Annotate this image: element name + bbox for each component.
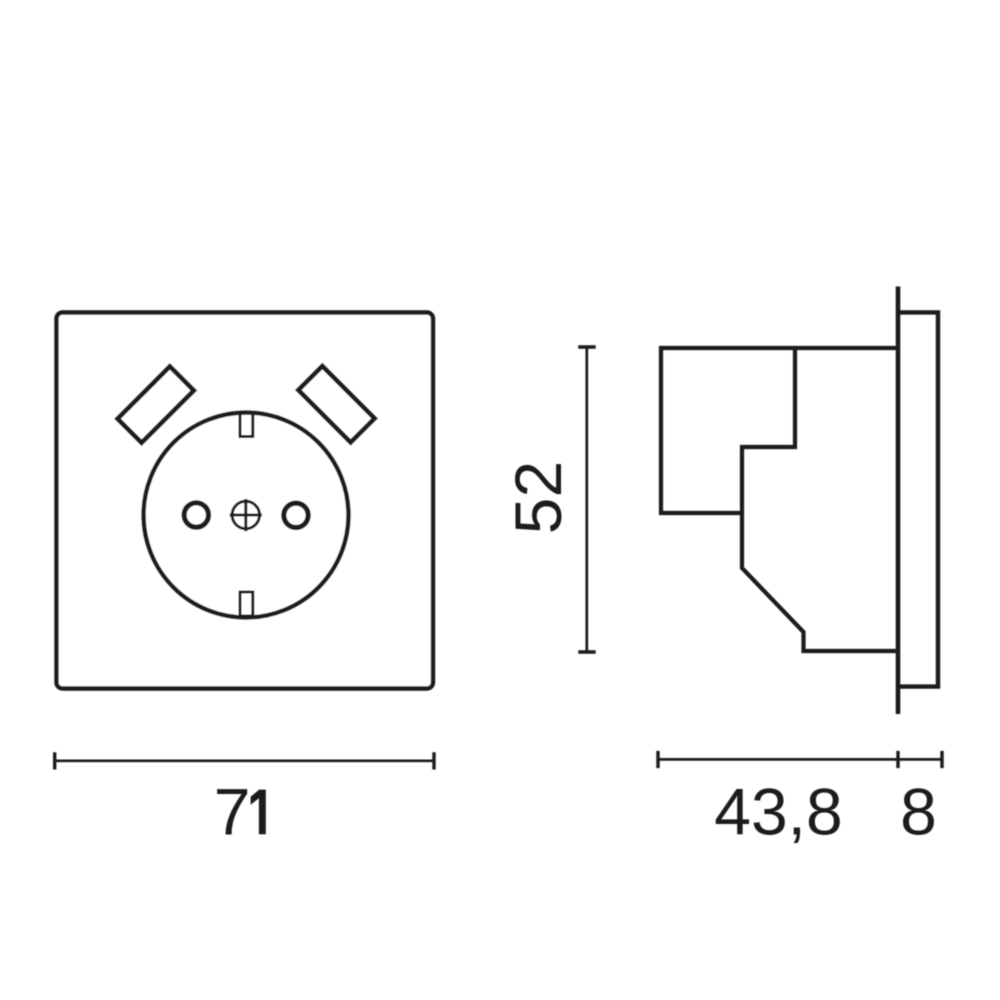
svg-text:8: 8	[900, 775, 937, 849]
svg-text:43,8: 43,8	[714, 775, 842, 849]
svg-text:7: 7	[214, 775, 251, 849]
svg-text:52: 52	[501, 461, 575, 534]
